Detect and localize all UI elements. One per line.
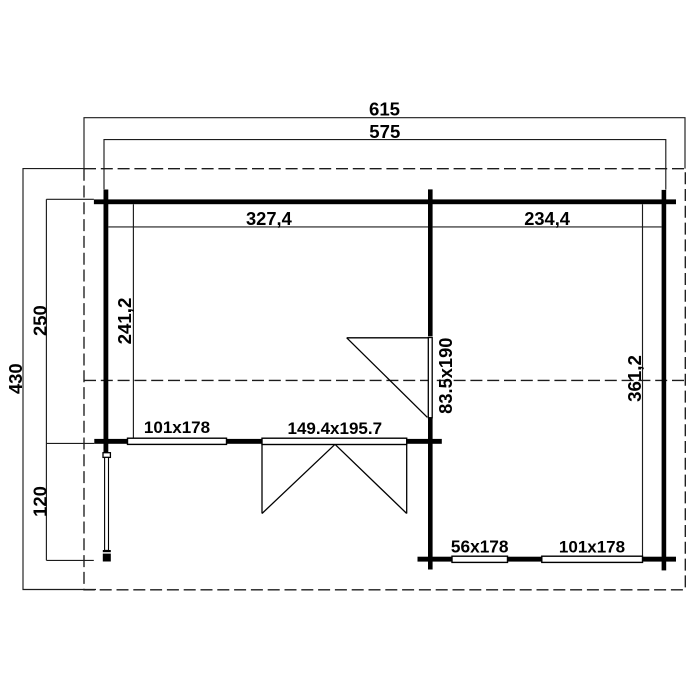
svg-text:101x178: 101x178	[144, 418, 210, 437]
svg-text:234,4: 234,4	[524, 208, 571, 229]
svg-text:327,4: 327,4	[246, 208, 293, 229]
svg-text:250: 250	[29, 305, 50, 336]
svg-text:575: 575	[369, 121, 400, 142]
svg-text:241,2: 241,2	[114, 298, 135, 345]
svg-text:83.5x190: 83.5x190	[435, 338, 456, 414]
svg-text:56x178: 56x178	[451, 537, 509, 557]
svg-text:120: 120	[29, 486, 50, 517]
svg-text:149.4x195.7: 149.4x195.7	[288, 419, 383, 438]
svg-text:101x178: 101x178	[559, 538, 625, 557]
svg-text:615: 615	[369, 99, 400, 120]
svg-text:430: 430	[5, 363, 26, 394]
svg-text:361,2: 361,2	[624, 355, 645, 402]
